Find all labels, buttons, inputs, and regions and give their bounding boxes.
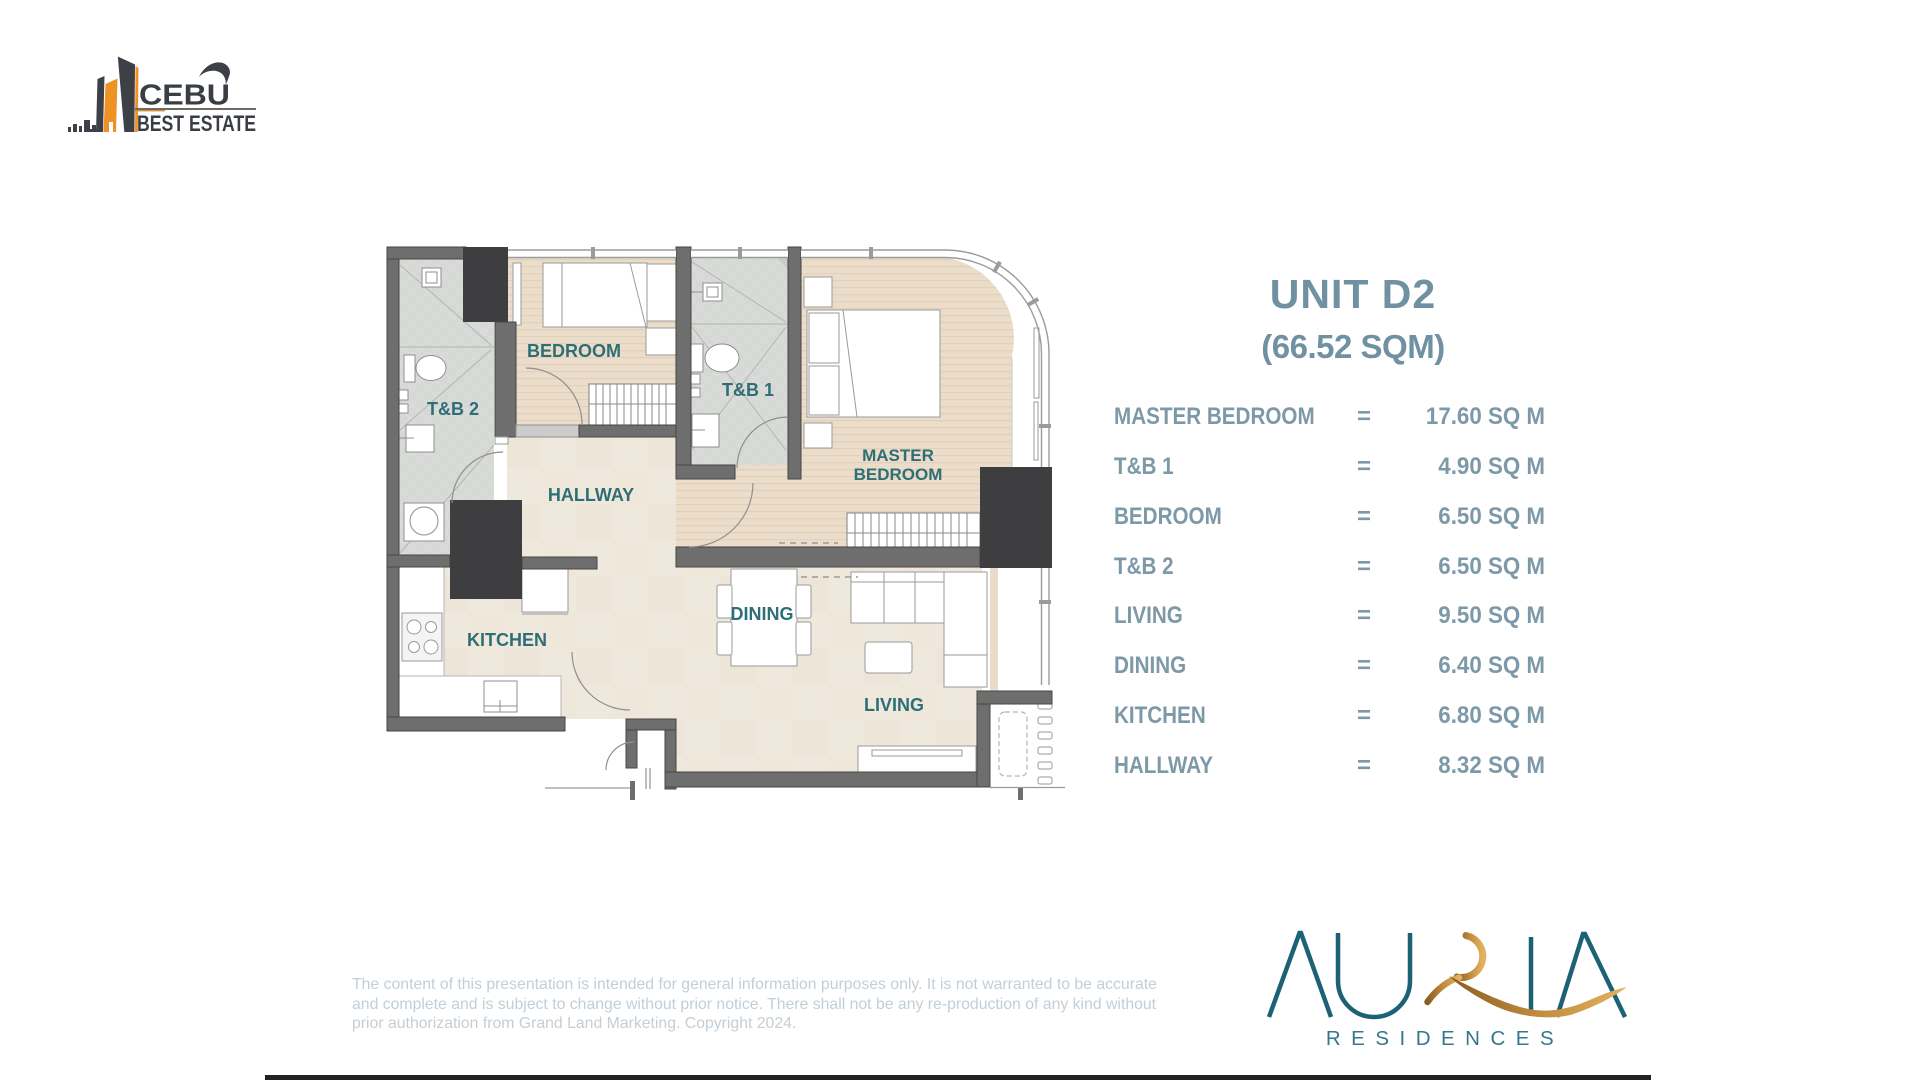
svg-text:MASTER: MASTER xyxy=(862,446,934,465)
svg-text:BEST ESTATE: BEST ESTATE xyxy=(137,111,256,136)
svg-text:DINING: DINING xyxy=(731,604,794,624)
svg-text:CEBU: CEBU xyxy=(139,80,230,112)
svg-text:T&B 2: T&B 2 xyxy=(427,399,479,419)
svg-text:HALLWAY: HALLWAY xyxy=(548,485,634,505)
svg-text:T&B 1: T&B 1 xyxy=(722,380,774,400)
svg-text:RESIDENCES: RESIDENCES xyxy=(1326,1027,1564,1050)
svg-text:BEDROOM: BEDROOM xyxy=(527,341,621,361)
svg-text:KITCHEN: KITCHEN xyxy=(467,630,547,650)
svg-text:BEDROOM: BEDROOM xyxy=(854,465,943,484)
svg-text:LIVING: LIVING xyxy=(864,695,924,715)
